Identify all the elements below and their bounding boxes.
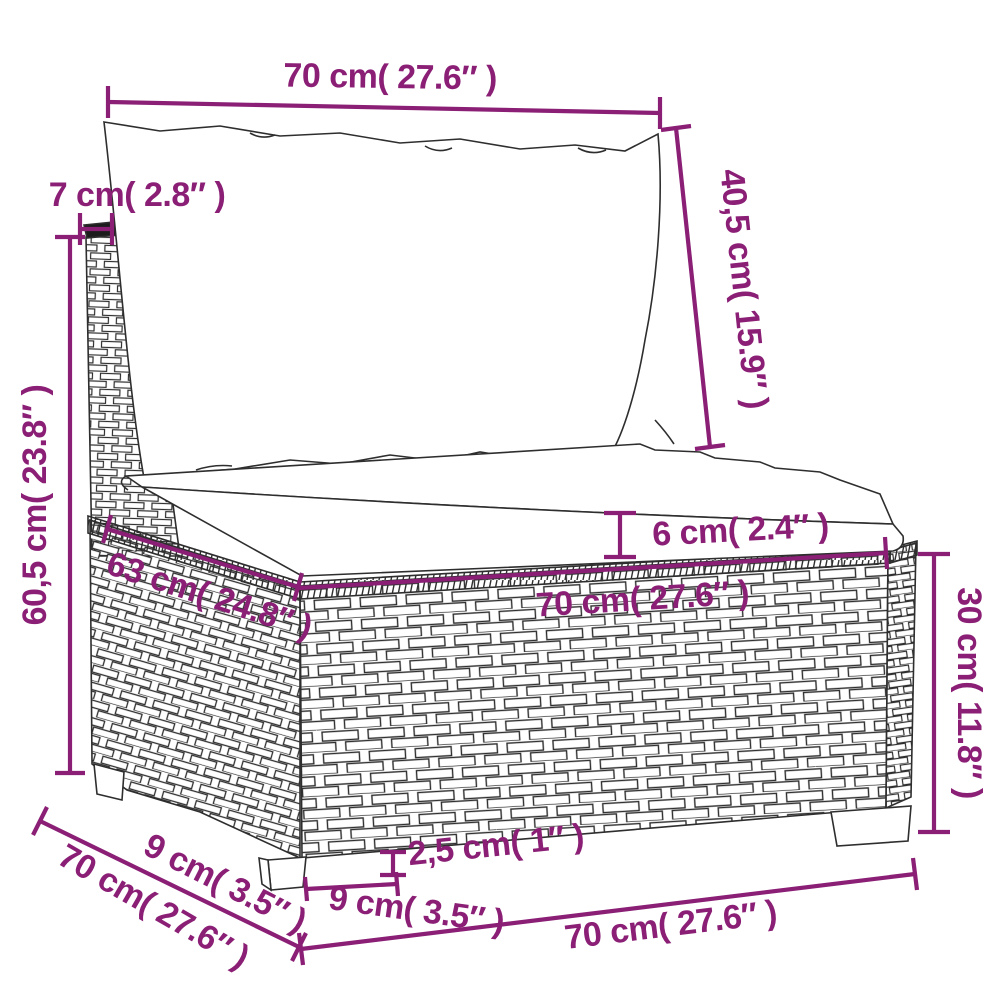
label-back-frame-thickness: 7 cm( 2.8″ ) xyxy=(49,176,226,214)
sofa-dimension-drawing: 70 cm( 27.6″ ) 7 cm( 2.8″ ) 40,5 cm( 15.… xyxy=(0,0,1000,1000)
dim-base-height xyxy=(918,554,950,832)
sofa-line-art xyxy=(84,122,917,890)
dimension-diagram: 70 cm( 27.6″ ) 7 cm( 2.8″ ) 40,5 cm( 15.… xyxy=(0,0,1000,1000)
front-right-leg xyxy=(831,806,911,846)
label-leg-width: 9 cm( 3.5″ ) xyxy=(326,879,506,941)
dim-leg-height xyxy=(380,852,406,875)
label-back-cushion-height: 40,5 cm( 15.9″ ) xyxy=(712,167,775,410)
label-back-cushion-width: 70 cm( 27.6″ ) xyxy=(283,57,497,98)
dim-total-height xyxy=(55,237,85,773)
base-right-face xyxy=(886,543,916,808)
label-base-height: 30 cm( 11.8″ ) xyxy=(950,587,988,799)
front-left-leg xyxy=(268,857,306,890)
label-total-height: 60,5 cm( 23.8″ ) xyxy=(16,385,54,626)
